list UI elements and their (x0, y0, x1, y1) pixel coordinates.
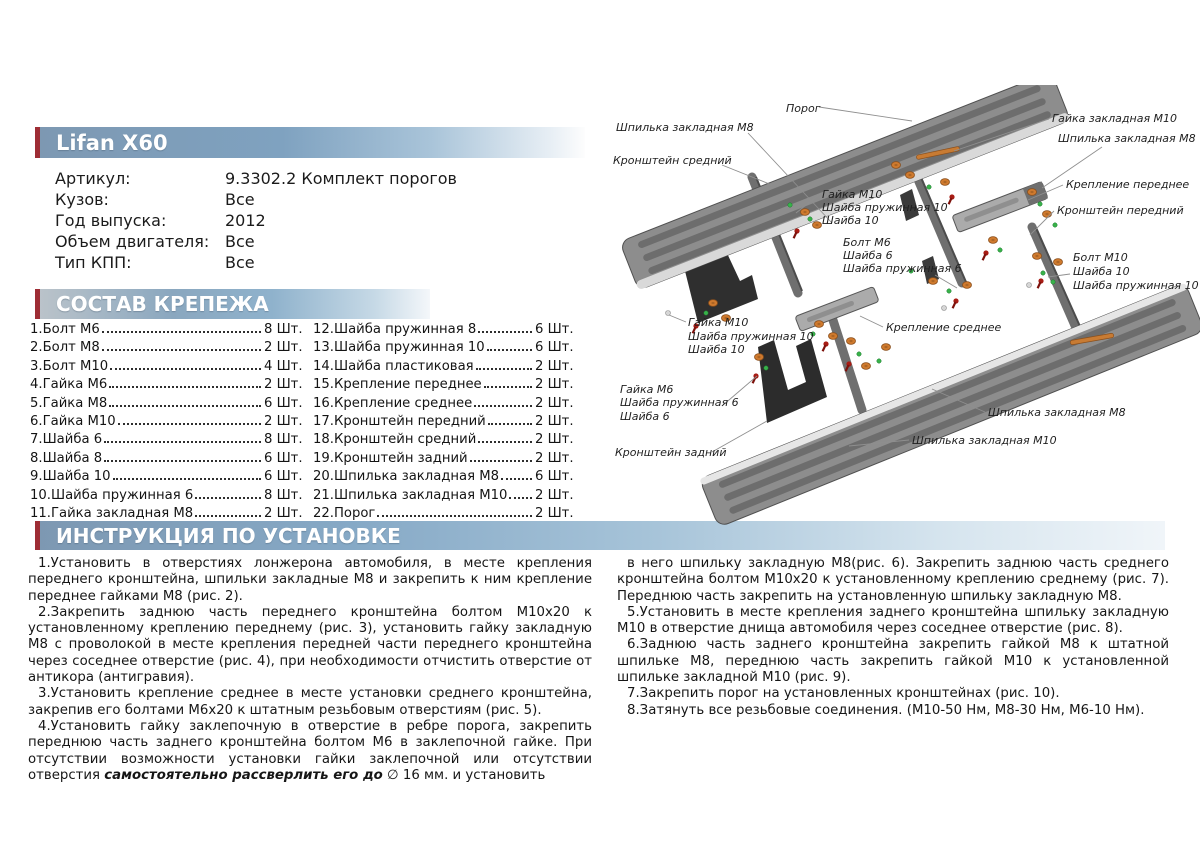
parts-item-name: 8.Шайба 8 (30, 451, 102, 466)
parts-item-qty: 6 Шт. (535, 322, 581, 337)
parts-item-qty: 6 Шт. (535, 469, 581, 484)
spec-row: Объем двигателя:Все (55, 231, 457, 252)
parts-item: 13.Шайба пружинная 106 Шт. (313, 340, 581, 358)
parts-item-name: 4.Гайка М6 (30, 377, 107, 392)
parts-item-qty: 6 Шт. (264, 396, 310, 411)
diagram-label: Шайба 10 (822, 214, 879, 227)
instruction-text: 3.Установить крепление среднее в месте у… (28, 686, 592, 717)
parts-item-name: 16.Крепление среднее (313, 396, 472, 411)
diagram-label: Шайба пружинная 10 (1073, 279, 1199, 292)
parts-item: 6.Гайка М102 Шт. (30, 414, 310, 432)
diagram-label: Шпилька закладная М8 (1058, 132, 1196, 145)
spec-value: Все (225, 252, 255, 273)
dot-leader (195, 497, 261, 499)
parts-list-column-2: 12.Шайба пружинная 86 Шт.13.Шайба пружин… (313, 322, 581, 524)
spec-value: 2012 (225, 210, 266, 231)
instruction-text: в него шпильку закладную М8(рис. 6). Зак… (617, 556, 1169, 604)
parts-item-qty: 2 Шт. (535, 488, 581, 503)
parts-item: 14.Шайба пластиковая2 Шт. (313, 359, 581, 377)
diagram-label: Шайба 6 (843, 249, 893, 262)
diagram-label: Гайка закладная М10 (1052, 112, 1177, 125)
instructions-column-right: в него шпильку закладную М8(рис. 6). Зак… (617, 556, 1169, 719)
instruction-text: 6.Заднюю часть заднего кронштейна закреп… (617, 637, 1169, 685)
dot-leader (102, 331, 261, 333)
instruction-paragraph: 8.Затянуть все резьбовые соединения. (М1… (617, 703, 1169, 719)
diagram-label: Гайка М10 (822, 188, 882, 201)
spec-label: Артикул: (55, 168, 225, 189)
instruction-text: 7.Закрепить порог на установленных кронш… (627, 686, 1060, 701)
parts-item-qty: 2 Шт. (535, 396, 581, 411)
parts-item-qty: 6 Шт. (264, 469, 310, 484)
parts-item-qty: 8 Шт. (264, 488, 310, 503)
parts-item-qty: 2 Шт. (535, 506, 581, 521)
diagram-label: Кронштейн передний (1057, 204, 1184, 217)
instruction-text: 1.Установить в отверстиях лонжерона авто… (28, 556, 592, 604)
parts-item: 19.Кронштейн задний2 Шт. (313, 451, 581, 469)
parts-item: 8.Шайба 86 Шт. (30, 451, 310, 469)
parts-item-name: 2.Болт М8 (30, 340, 100, 355)
parts-item-qty: 2 Шт. (264, 340, 310, 355)
parts-item-qty: 2 Шт. (535, 432, 581, 447)
dot-leader (509, 497, 532, 499)
spec-row: Тип КПП:Все (55, 252, 457, 273)
parts-item: 17.Кронштейн передний2 Шт. (313, 414, 581, 432)
parts-list-column-1: 1.Болт М68 Шт.2.Болт М82 Шт.3.Болт М104 … (30, 322, 310, 524)
diagram-label: Гайка М10 (688, 316, 748, 329)
dot-leader (487, 349, 532, 351)
parts-item-name: 15.Крепление переднее (313, 377, 482, 392)
parts-item: 7.Шайба 68 Шт. (30, 432, 310, 450)
spec-label: Кузов: (55, 189, 225, 210)
parts-item-qty: 6 Шт. (535, 340, 581, 355)
parts-item: 15.Крепление переднее2 Шт. (313, 377, 581, 395)
leader-line (860, 316, 883, 327)
diagram-label: Болт М10 (1073, 251, 1128, 264)
parts-item-name: 14.Шайба пластиковая (313, 359, 474, 374)
diagram-label: Шпилька закладная М8 (988, 406, 1126, 419)
exploded-view-diagram: ПорогШпилька закладная М8Кронштейн средн… (600, 85, 1200, 525)
instruction-text: 5.Установить в месте крепления заднего к… (617, 605, 1169, 636)
dot-leader (104, 460, 261, 462)
leader-line (722, 165, 772, 185)
parts-item-name: 5.Гайка М8 (30, 396, 107, 411)
parts-item: 12.Шайба пружинная 86 Шт. (313, 322, 581, 340)
parts-item-name: 6.Гайка М10 (30, 414, 116, 429)
parts-item-qty: 2 Шт. (535, 359, 581, 374)
leader-line (669, 315, 686, 322)
instruction-paragraph: 5.Установить в месте крепления заднего к… (617, 605, 1169, 638)
instruction-paragraph: 7.Закрепить порог на установленных кронш… (617, 686, 1169, 702)
instruction-paragraph: 1.Установить в отверстиях лонжерона авто… (28, 556, 592, 605)
parts-item: 1.Болт М68 Шт. (30, 322, 310, 340)
parts-item: 4.Гайка М62 Шт. (30, 377, 310, 395)
parts-item-qty: 2 Шт. (535, 451, 581, 466)
product-specs: Артикул:9.3302.2 Комплект пороговКузов:В… (55, 168, 457, 273)
parts-item: 2.Болт М82 Шт. (30, 340, 310, 358)
diagram-label: Гайка М6 (620, 383, 673, 396)
dot-leader (470, 460, 532, 462)
install-section-bar: ИНСТРУКЦИЯ ПО УСТАНОВКЕ (35, 521, 1165, 550)
parts-item-qty: 8 Шт. (264, 432, 310, 447)
dot-leader (484, 386, 532, 388)
dot-leader (474, 405, 532, 407)
instruction-text: ∅ 16 мм. и установить (383, 768, 546, 783)
instruction-paragraph: 3.Установить крепление среднее в месте у… (28, 686, 592, 719)
spec-label: Объем двигателя: (55, 231, 225, 252)
spec-value: Все (225, 231, 255, 252)
parts-item: 3.Болт М104 Шт. (30, 359, 310, 377)
diagram-label: Крепление среднее (886, 321, 1002, 334)
rear-bracket (758, 339, 827, 423)
diagram-label: Кронштейн средний (613, 154, 732, 167)
instruction-paragraph: 2.Закрепить заднюю часть переднего кронш… (28, 605, 592, 686)
parts-item-name: 13.Шайба пружинная 10 (313, 340, 485, 355)
diagram-label: Болт М6 (843, 236, 891, 249)
spec-row: Артикул:9.3302.2 Комплект порогов (55, 168, 457, 189)
spec-label: Год выпуска: (55, 210, 225, 231)
dot-leader (377, 515, 532, 517)
diagram-label: Шайба 10 (1073, 265, 1130, 278)
diagram-label: Шпилька закладная М8 (616, 121, 754, 134)
parts-item-name: 21.Шпилька закладная М10 (313, 488, 507, 503)
dot-leader (501, 478, 532, 480)
parts-item-qty: 2 Шт. (264, 377, 310, 392)
parts-item: 16.Крепление среднее2 Шт. (313, 396, 581, 414)
dot-leader (109, 405, 261, 407)
dot-leader (113, 478, 261, 480)
parts-item: 20.Шпилька закладная М86 Шт. (313, 469, 581, 487)
parts-item-name: 19.Кронштейн задний (313, 451, 468, 466)
dot-leader (110, 368, 261, 370)
dot-leader (478, 331, 532, 333)
spec-row: Год выпуска:2012 (55, 210, 457, 231)
parts-item-qty: 8 Шт. (264, 322, 310, 337)
diagram-label: Шайба пружинная 10 (688, 330, 814, 343)
diagram-label: Крепление переднее (1066, 178, 1189, 191)
parts-item-name: 20.Шпилька закладная М8 (313, 469, 499, 484)
dot-leader (476, 368, 532, 370)
instruction-paragraph: 6.Заднюю часть заднего кронштейна закреп… (617, 637, 1169, 686)
parts-item-name: 22.Порог (313, 506, 375, 521)
spec-value: 9.3302.2 Комплект порогов (225, 168, 457, 189)
parts-item-name: 7.Шайба 6 (30, 432, 102, 447)
instruction-text: 8.Затянуть все резьбовые соединения. (М1… (627, 703, 1144, 718)
diagram-label: Шайба 10 (688, 343, 745, 356)
diagram-label: Шайба пружинная 10 (822, 201, 948, 214)
instruction-text: самостоятельно рассверлить его до (104, 768, 383, 783)
spec-value: Все (225, 189, 255, 210)
instruction-paragraph: в него шпильку закладную М8(рис. 6). Зак… (617, 556, 1169, 605)
spec-row: Кузов:Все (55, 189, 457, 210)
dot-leader (102, 349, 261, 351)
parts-item-qty: 2 Шт. (535, 377, 581, 392)
parts-item-name: 1.Болт М6 (30, 322, 100, 337)
parts-item: 21.Шпилька закладная М102 Шт. (313, 488, 581, 506)
parts-item-qty: 2 Шт. (264, 506, 310, 521)
parts-item: 5.Гайка М86 Шт. (30, 396, 310, 414)
product-title: Lifan X60 (40, 131, 168, 155)
parts-item-qty: 2 Шт. (535, 414, 581, 429)
parts-section-title: СОСТАВ КРЕПЕЖА (40, 292, 269, 316)
diagram-label: Шайба пружинная 6 (843, 262, 962, 275)
parts-item-name: 3.Болт М10 (30, 359, 108, 374)
parts-item-name: 9.Шайба 10 (30, 469, 111, 484)
diagram-label: Порог (786, 102, 821, 115)
leader-line (819, 107, 912, 121)
leader-line (935, 275, 957, 288)
diagram-label: Кронштейн задний (615, 446, 726, 459)
parts-item-qty: 4 Шт. (264, 359, 310, 374)
diagram-label: Шайба пружинная 6 (620, 396, 739, 409)
parts-item-name: 10.Шайба пружинная 6 (30, 488, 193, 503)
instruction-sheet: Lifan X60 Артикул:9.3302.2 Комплект поро… (0, 0, 1200, 848)
dot-leader (118, 423, 261, 425)
parts-item-qty: 2 Шт. (264, 414, 310, 429)
parts-section-bar: СОСТАВ КРЕПЕЖА (35, 289, 430, 319)
dot-leader (478, 441, 532, 443)
parts-item-qty: 6 Шт. (264, 451, 310, 466)
diagram-label: Шайба 6 (620, 410, 670, 423)
parts-item-name: 18.Кронштейн средний (313, 432, 476, 447)
instructions-column-left: 1.Установить в отверстиях лонжерона авто… (28, 556, 592, 784)
instruction-paragraph: 4.Установить гайку заклепочную в отверст… (28, 719, 592, 784)
dot-leader (104, 441, 261, 443)
parts-item: 9.Шайба 106 Шт. (30, 469, 310, 487)
product-title-bar: Lifan X60 (35, 127, 585, 158)
parts-item-name: 17.Кронштейн передний (313, 414, 486, 429)
parts-item: 18.Кронштейн средний2 Шт. (313, 432, 581, 450)
dot-leader (109, 386, 261, 388)
parts-item: 10.Шайба пружинная 68 Шт. (30, 488, 310, 506)
dot-leader (488, 423, 532, 425)
diagram-label: Шпилька закладная М10 (912, 434, 1057, 447)
spec-label: Тип КПП: (55, 252, 225, 273)
parts-item-name: 11.Гайка закладная М8 (30, 506, 193, 521)
install-section-title: ИНСТРУКЦИЯ ПО УСТАНОВКЕ (40, 524, 401, 548)
parts-item-name: 12.Шайба пружинная 8 (313, 322, 476, 337)
instruction-text: 2.Закрепить заднюю часть переднего кронш… (28, 605, 592, 685)
dot-leader (195, 515, 261, 517)
